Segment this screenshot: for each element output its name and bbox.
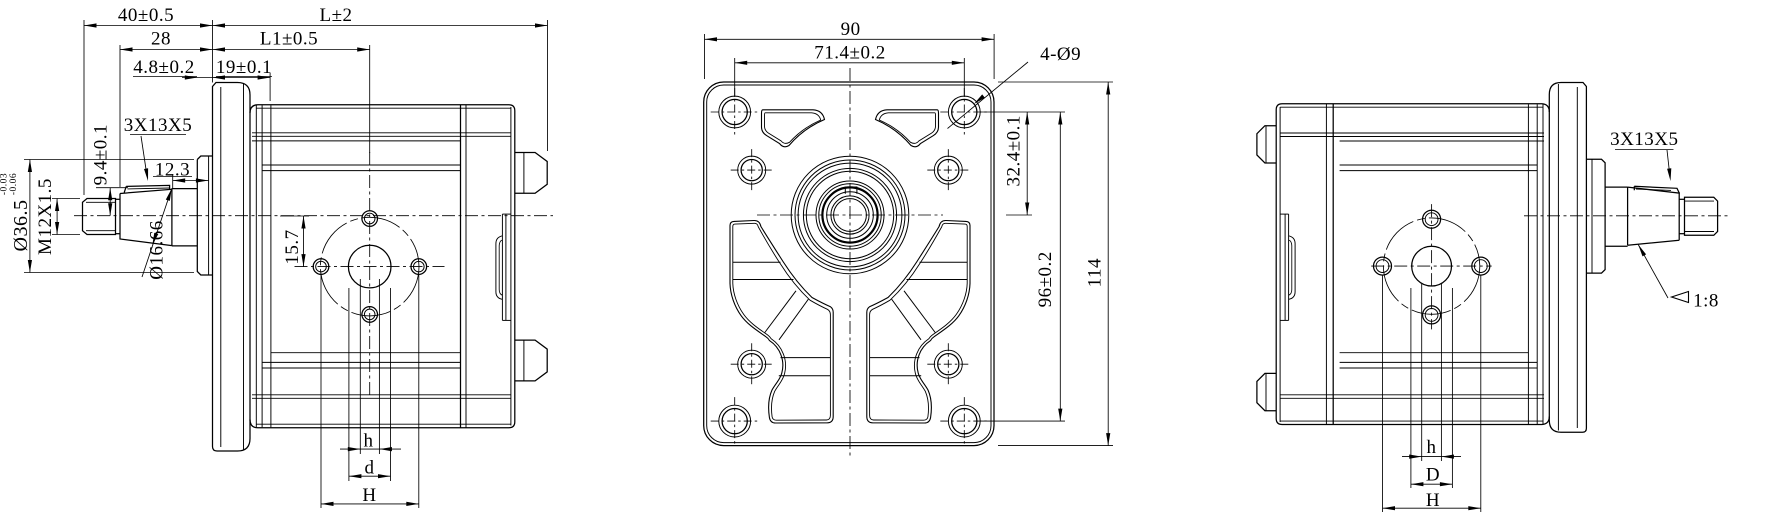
svg-text:114: 114: [1085, 258, 1106, 287]
svg-text:40±0.5: 40±0.5: [118, 5, 174, 26]
svg-text:1:8: 1:8: [1693, 291, 1719, 312]
svg-text:4.8±0.2: 4.8±0.2: [133, 57, 194, 78]
svg-text:9.4±0.1: 9.4±0.1: [91, 124, 112, 185]
svg-text:h: h: [1427, 437, 1437, 458]
svg-text:Ø36.5: Ø36.5: [10, 200, 32, 252]
svg-text:19±0.1: 19±0.1: [216, 57, 272, 78]
svg-text:D: D: [1426, 465, 1440, 486]
svg-text:96±0.2: 96±0.2: [1035, 251, 1056, 307]
svg-text:-0.06: -0.06: [9, 173, 19, 195]
svg-text:3X13X5: 3X13X5: [124, 115, 192, 136]
svg-text:32.4±0.1: 32.4±0.1: [1004, 115, 1025, 186]
svg-text:L1±0.5: L1±0.5: [260, 29, 318, 50]
svg-text:h: h: [364, 431, 374, 452]
svg-text:28: 28: [151, 29, 171, 50]
svg-text:3X13X5: 3X13X5: [1610, 129, 1678, 150]
svg-text:M12X1.5: M12X1.5: [35, 178, 56, 255]
svg-text:4-Ø9: 4-Ø9: [1040, 44, 1081, 65]
svg-text:L±2: L±2: [319, 5, 352, 26]
svg-text:d: d: [365, 458, 375, 479]
svg-text:71.4±0.2: 71.4±0.2: [814, 43, 885, 64]
svg-text:Ø16.66: Ø16.66: [147, 220, 168, 279]
svg-text:H: H: [362, 485, 376, 506]
svg-text:15.7: 15.7: [282, 229, 303, 264]
svg-text:90: 90: [841, 19, 861, 40]
